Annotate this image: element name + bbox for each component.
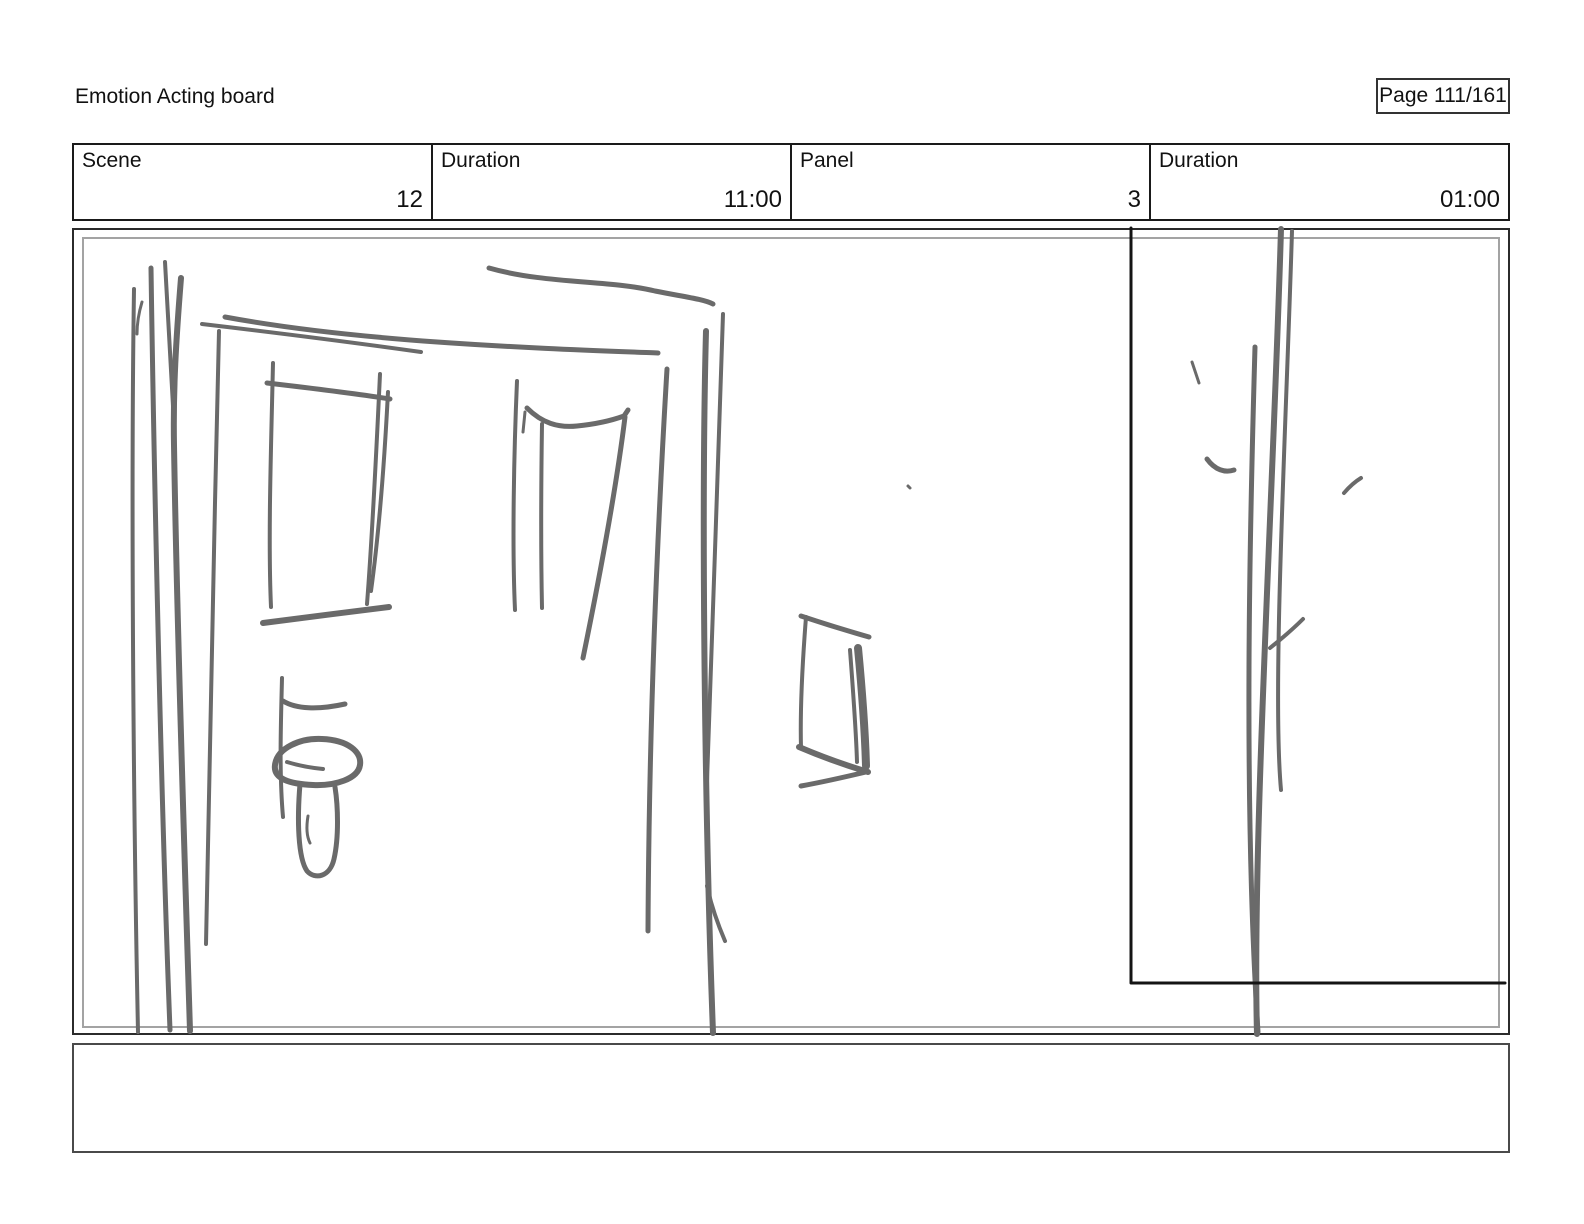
- panel-frame-outer: [73, 229, 1509, 1034]
- storyboard-sketch: [0, 0, 1584, 1224]
- storyboard-page: Emotion Acting board Page 111/161 Scene …: [0, 0, 1584, 1224]
- camera-crop-overlay: [1131, 228, 1505, 983]
- notes-box: [72, 1043, 1510, 1153]
- sketch-strokes: [133, 229, 1361, 1034]
